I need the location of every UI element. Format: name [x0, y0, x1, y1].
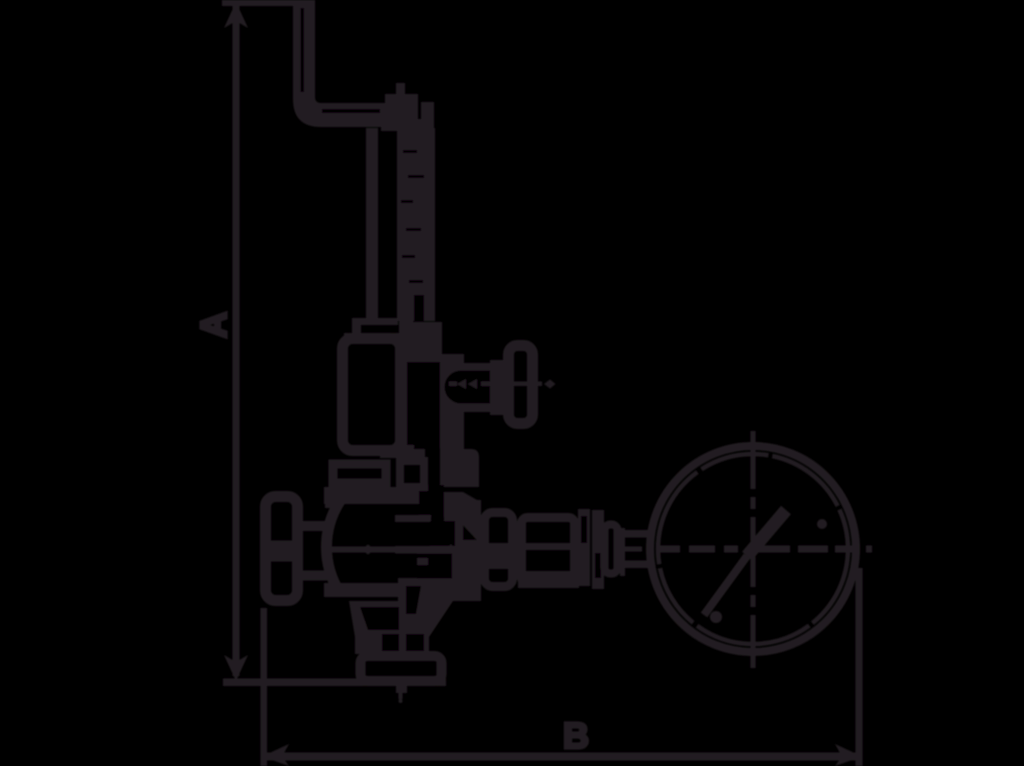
- svg-text:B: B: [563, 715, 589, 756]
- svg-text:A: A: [193, 312, 234, 338]
